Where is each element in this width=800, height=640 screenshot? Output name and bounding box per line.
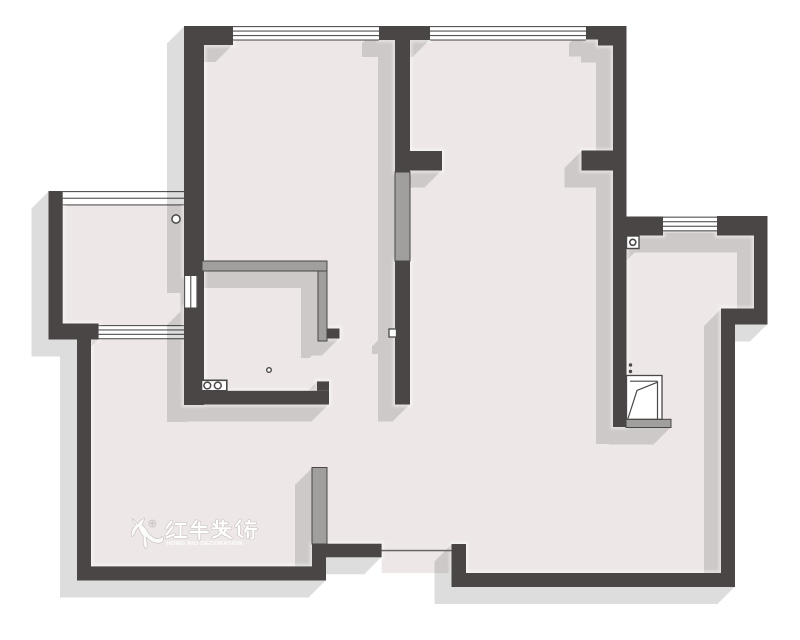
svg-text:HONG NIU DECORATION: HONG NIU DECORATION [167,541,243,547]
